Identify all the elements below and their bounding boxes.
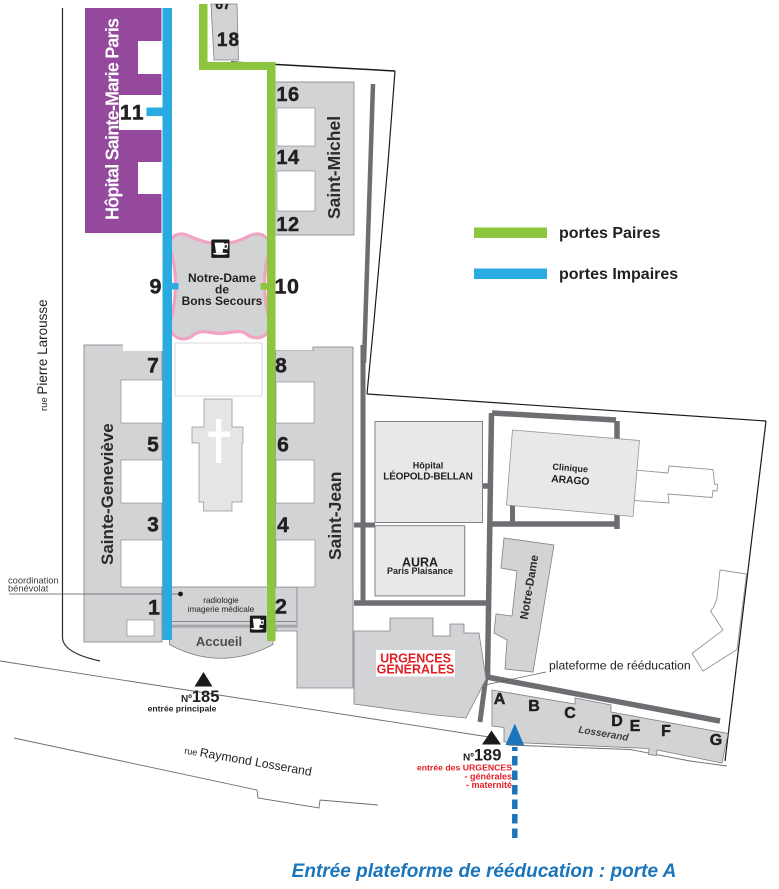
svg-text:G: G [710,732,722,749]
svg-text:18: 18 [217,30,240,51]
svg-text:10: 10 [275,275,300,299]
svg-text:rue Pierre Larousse: rue Pierre Larousse [35,299,50,411]
svg-text:radiologie: radiologie [203,596,239,605]
svg-text:imagerie médicale: imagerie médicale [188,605,255,614]
svg-text:portes Impaires: portes Impaires [559,266,678,283]
svg-text:LÉOPOLD-BELLAN: LÉOPOLD-BELLAN [383,470,472,483]
svg-text:F: F [661,723,671,740]
svg-text:Hôpital: Hôpital [413,461,444,471]
svg-text:B: B [528,698,540,715]
svg-text:Sainte-Geneviève: Sainte-Geneviève [98,423,117,565]
svg-text:plateforme de rééducation: plateforme de rééducation [549,659,691,673]
svg-text:- maternité: - maternité [466,780,512,790]
svg-text:12: 12 [276,214,299,236]
svg-text:entrée principale: entrée principale [148,704,217,714]
svg-text:Bons Secours: Bons Secours [182,294,263,308]
svg-text:3: 3 [147,514,159,537]
svg-text:2: 2 [275,595,287,619]
svg-text:9: 9 [150,275,162,299]
svg-text:E: E [630,718,641,735]
svg-text:C: C [564,705,576,722]
svg-text:bénévolat: bénévolat [8,584,49,594]
svg-text:11: 11 [120,102,145,125]
svg-text:Entrée plateforme de rééducati: Entrée plateforme de rééducation : porte… [292,861,677,882]
svg-text:16: 16 [276,84,299,106]
svg-text:7: 7 [147,355,159,378]
svg-text:Saint-Jean: Saint-Jean [325,472,345,561]
svg-text:Saint-Michel: Saint-Michel [324,116,344,219]
svg-text:GÉNÉRALES: GÉNÉRALES [377,662,455,677]
svg-text:portes Paires: portes Paires [559,225,660,242]
svg-text:1: 1 [148,596,160,620]
svg-text:14: 14 [276,147,300,169]
svg-text:Paris Plaisance: Paris Plaisance [387,566,453,576]
svg-text:8: 8 [275,355,287,378]
svg-text:6: 6 [277,434,289,457]
svg-text:Accueil: Accueil [196,634,242,649]
svg-text:D: D [611,713,623,730]
svg-text:A: A [494,691,506,708]
svg-text:4: 4 [277,514,289,537]
svg-text:5: 5 [147,434,159,457]
